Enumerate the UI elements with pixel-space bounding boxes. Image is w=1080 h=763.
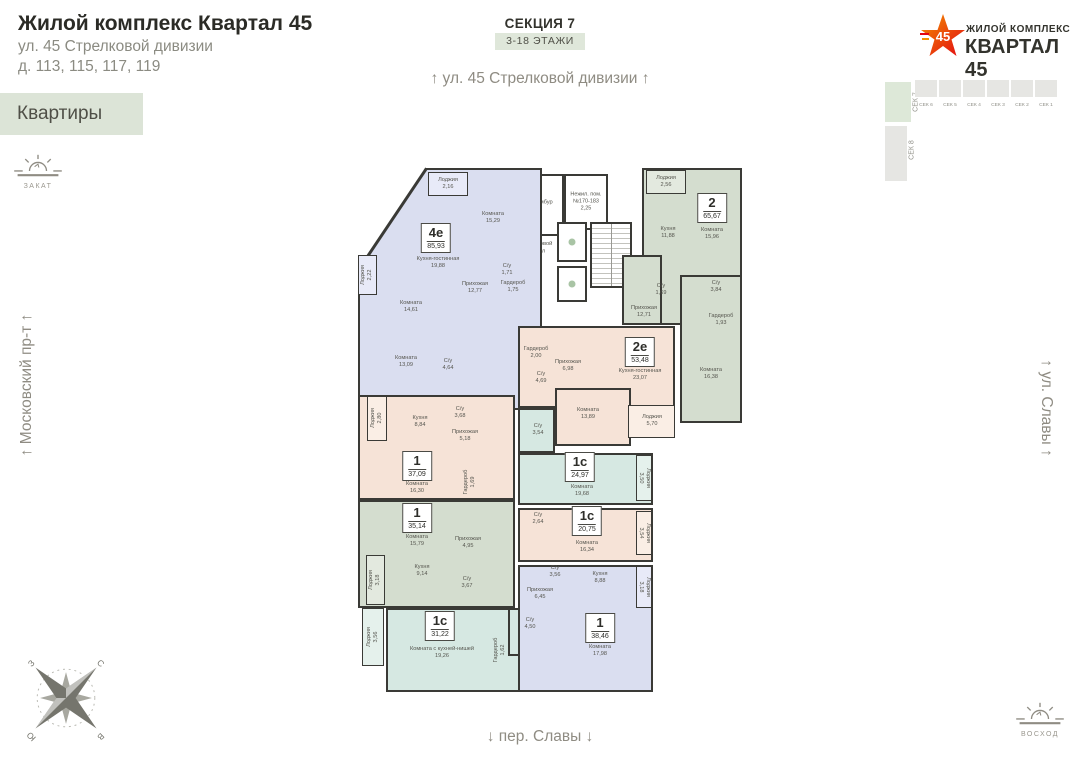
room-label: С/у1,69	[656, 283, 667, 297]
minimap-section-6[interactable]	[915, 80, 937, 97]
compass-west: З	[26, 658, 37, 669]
room-label: Прихожая4,95	[455, 536, 481, 550]
room-label: Прихожая6,45	[527, 587, 553, 601]
room-label: Прихожая5,18	[452, 429, 478, 443]
room-label: Лоджия2,56	[656, 175, 676, 189]
room-label: С/у4,69	[536, 371, 547, 385]
room-label: Комната16,38	[700, 367, 722, 381]
street-label-top: ↑ ул. 45 Стрелковой дивизии ↑	[415, 70, 665, 88]
sunrise-label: ВОСХОД	[1005, 731, 1075, 738]
room-label: С/у3,56	[550, 565, 561, 579]
apartments-button[interactable]: Квартиры	[0, 93, 143, 135]
minimap-section-8[interactable]	[885, 126, 907, 181]
room-label: Комната13,09	[395, 355, 417, 369]
room-label: С/у1,71	[502, 263, 513, 277]
sunset-label: ЗАКАТ	[3, 183, 73, 190]
room-label: С/у2,64	[533, 512, 544, 526]
room-label: Кухня11,88	[661, 226, 676, 240]
room-label: Комната15,96	[701, 227, 723, 241]
room-label: Кухня8,88	[593, 571, 608, 585]
minimap-section-label: СЕК 3	[991, 103, 1005, 108]
room-label: С/у3,54	[533, 423, 544, 437]
brand-name-line1: ЖИЛОЙ КОМПЛЕКС	[966, 24, 1070, 35]
room-label: Гардероб1,62	[493, 638, 507, 663]
svg-text:45: 45	[936, 29, 950, 44]
room-label: Кухня9,14	[415, 564, 430, 578]
apartment-badge-1c-31[interactable]: 1с31,22	[425, 611, 455, 641]
room-label: Комната16,30	[406, 481, 428, 495]
room-label: С/у3,84	[711, 280, 722, 294]
street-label-bottom: ↓ пер. Славы ↓	[415, 728, 665, 746]
room-label: Комната17,98	[589, 644, 611, 658]
room-label: С/у3,68	[455, 406, 466, 420]
address-line-2: д. 113, 115, 117, 119	[18, 58, 160, 76]
room-label: С/у4,50	[525, 617, 536, 631]
room-label: Лоджия3,54	[637, 523, 651, 543]
apartment-badge-1c-20[interactable]: 1с20,75	[572, 506, 602, 536]
room-label: Кухня8,84	[413, 415, 428, 429]
room-label: Лоджия5,70	[642, 414, 662, 428]
sunrise-icon	[1014, 696, 1066, 730]
page-title: Жилой комплекс Квартал 45	[18, 12, 312, 36]
room-label: Гардероб1,69	[463, 470, 477, 495]
room-label: С/у3,67	[462, 576, 473, 590]
minimap-section-7[interactable]	[885, 82, 911, 122]
minimap-section-5[interactable]	[939, 80, 961, 97]
elevator	[557, 222, 587, 262]
room-label: Лоджия3,18	[637, 577, 651, 597]
room-label: Прихожая12,77	[462, 281, 488, 295]
apartment-2[interactable]	[680, 275, 742, 423]
address-line-1: ул. 45 Стрелковой дивизии	[18, 38, 213, 56]
nonresidential-label: Нежил. пом. №170-1832,25	[570, 192, 601, 212]
minimap-section-label: СЕК 5	[943, 103, 957, 108]
room-label: Лоджия3,18	[368, 570, 382, 590]
street-label-right: ↑ ул. Славы ↑	[1037, 359, 1055, 456]
room-label: Комната с кухней-нишей19,26	[410, 646, 474, 660]
apartment-badge-2e[interactable]: 2е53,48	[625, 337, 655, 367]
minimap-section-2[interactable]	[1011, 80, 1033, 97]
room-label: Комната15,29	[482, 211, 504, 225]
minimap-section-8-label: СЕК 8	[909, 140, 916, 160]
room-label: Лоджия3,56	[366, 627, 380, 647]
room-label: Кухня-гостинная19,88	[417, 256, 460, 270]
elevator	[557, 266, 587, 302]
apartment-badge-4e[interactable]: 4е85,93	[421, 223, 451, 253]
room-label: С/у4,64	[443, 358, 454, 372]
minimap-section-4[interactable]	[963, 80, 985, 97]
page: Жилой комплекс Квартал 45 ул. 45 Стрелко…	[0, 0, 1080, 763]
room-label: Лоджия2,16	[438, 177, 458, 191]
elevator-icon	[569, 239, 576, 246]
room-label: Лоджия3,50	[637, 468, 651, 488]
minimap-section-label: СЕК 2	[1015, 103, 1029, 108]
section-title: СЕКЦИЯ 7	[468, 16, 612, 31]
apartment-badge-2[interactable]: 265,67	[697, 193, 727, 223]
section-minimap: СЕК 7СЕК 6СЕК 5СЕК 4СЕК 3СЕК 2СЕК 1СЕК 8	[885, 78, 1065, 248]
compass-east: В	[95, 731, 106, 742]
room-label: Комната16,34	[576, 540, 598, 554]
compass-south: Ю	[24, 730, 37, 743]
room-label: Комната15,79	[406, 534, 428, 548]
room-label: Лоджия2,80	[370, 408, 384, 428]
room-label: Комната13,89	[577, 407, 599, 421]
street-label-left: ↑ Московский пр-т ↑	[18, 314, 36, 457]
room-label: Комната19,68	[571, 484, 593, 498]
room-label: Лоджия2,22	[360, 265, 374, 285]
room-label: Прихожая6,98	[555, 359, 581, 373]
apartment-badge-1-35[interactable]: 135,14	[402, 503, 432, 533]
minimap-section-3[interactable]	[987, 80, 1009, 97]
compass-north: С	[95, 657, 106, 668]
minimap-section-label: СЕК 1	[1039, 103, 1053, 108]
room-label: Гардероб1,75	[501, 280, 526, 294]
floor-plan: Тамбур Нежил. пом. №170-1832,25 Лифтовой…	[350, 160, 742, 695]
apartment-badge-1-38[interactable]: 138,46	[585, 613, 615, 643]
minimap-section-1[interactable]	[1035, 80, 1057, 97]
room-label: Комната14,61	[400, 300, 422, 314]
floors-badge: 3-18 ЭТАЖИ	[495, 33, 585, 50]
room-label: Гардероб1,93	[709, 313, 734, 327]
apartment-badge-1c-24[interactable]: 1с24,97	[565, 452, 595, 482]
apartment-badge-1-37[interactable]: 137,09	[402, 451, 432, 481]
sunset-icon	[12, 148, 64, 182]
minimap-section-label: СЕК 4	[967, 103, 981, 108]
brand-name-line2: КВАРТАЛ 45	[965, 36, 1080, 82]
room-label: Прихожая12,71	[631, 305, 657, 319]
elevator-icon	[569, 281, 576, 288]
room-label: Кухня-гостинная23,07	[619, 368, 662, 382]
minimap-section-label: СЕК 6	[919, 103, 933, 108]
room-label: Гардероб2,00	[524, 346, 549, 360]
brand-star-icon: 45	[920, 12, 966, 62]
compass-icon: С В Ю З	[18, 650, 114, 746]
